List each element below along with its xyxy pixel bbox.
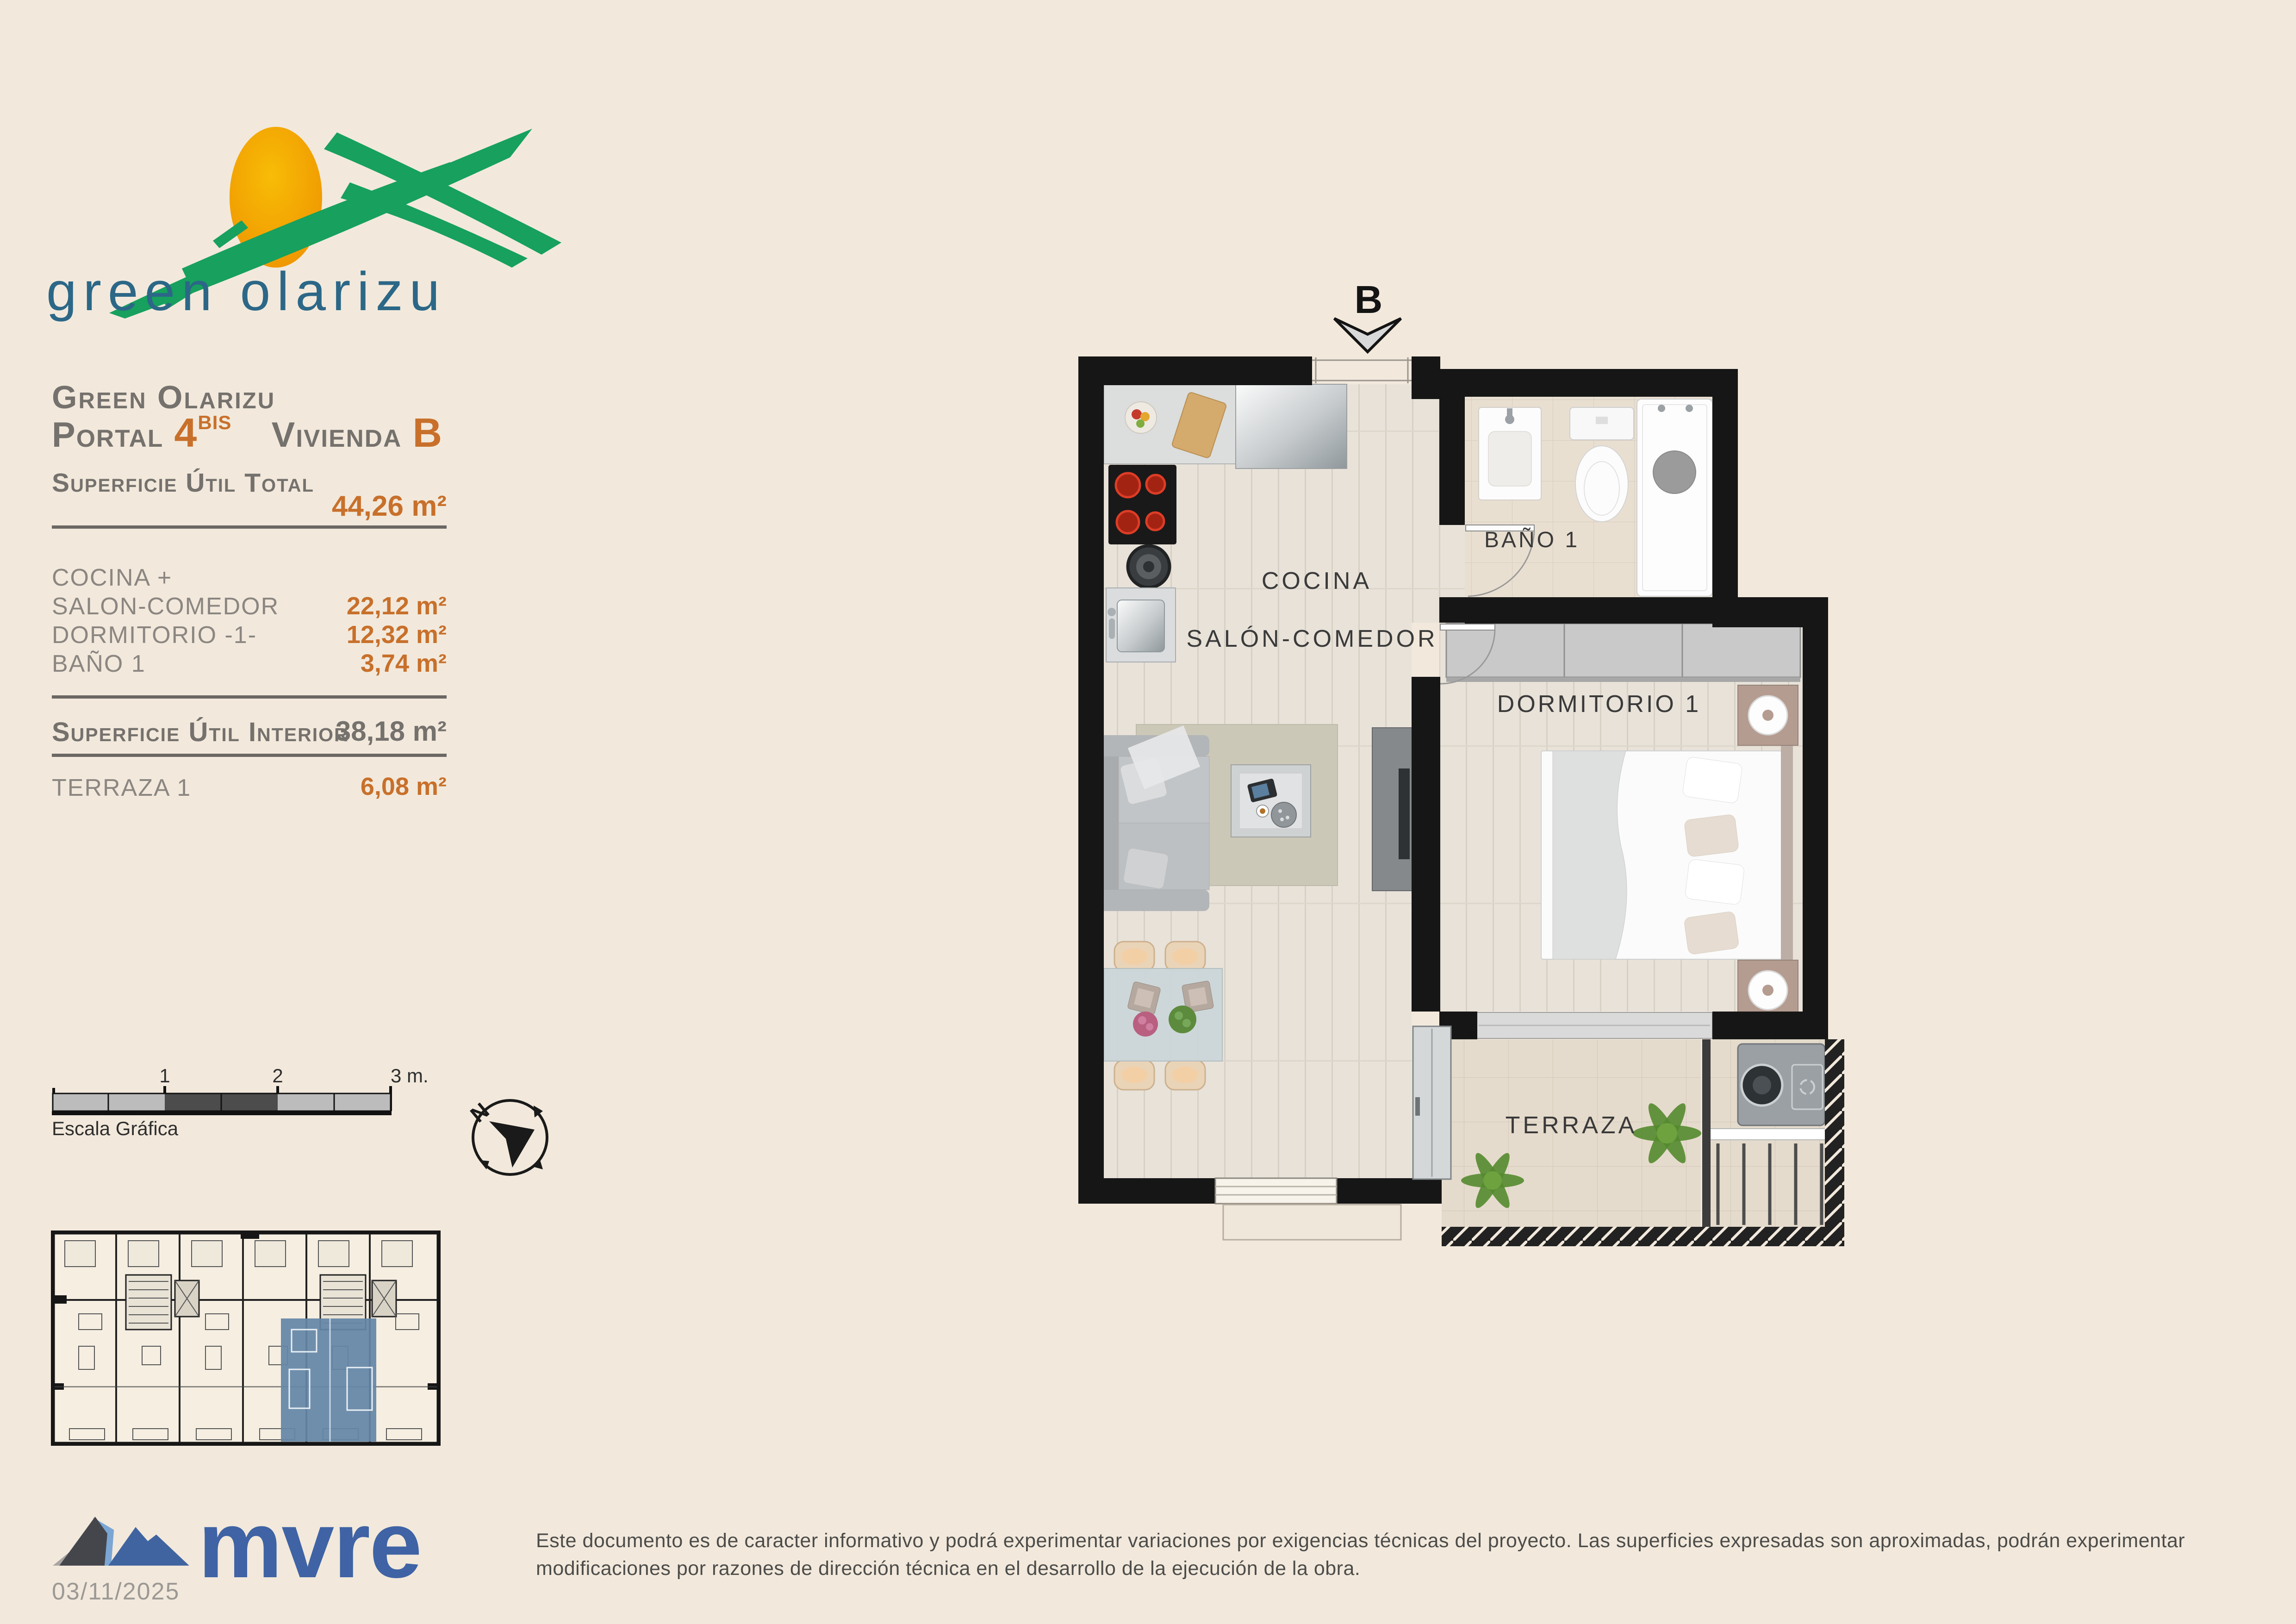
scale-tick-1: 1	[159, 1065, 170, 1087]
divider	[52, 754, 447, 757]
entrance-marker-label: B	[1355, 278, 1383, 321]
key-plan	[51, 1230, 441, 1446]
document-date: 03/11/2025	[52, 1578, 180, 1605]
terrace-washer-icon	[1738, 1044, 1825, 1125]
portal-number: 4	[174, 410, 198, 456]
logo-wordmark: green olarizu	[46, 261, 446, 322]
legal-disclaimer: Este documento es de caracter informativ…	[536, 1527, 2296, 1582]
area-row-value: 22,12 m²	[52, 592, 447, 620]
interior-area-value: 38,18 m²	[52, 715, 447, 747]
coffee-table-icon	[1231, 765, 1311, 837]
portal-suffix: BIS	[198, 412, 231, 433]
vivienda-label: Vivienda	[272, 415, 402, 455]
sofa-icon	[1095, 725, 1209, 911]
shower-icon	[1637, 399, 1712, 596]
window-sill-icon	[1223, 1205, 1401, 1240]
vivienda-letter: B	[412, 410, 443, 456]
compass-north-label: N	[466, 1099, 494, 1128]
fridge-icon	[1236, 384, 1347, 468]
total-area-value: 44,26 m²	[52, 490, 447, 523]
portal-label: Portal	[52, 415, 163, 455]
tv-icon	[1399, 768, 1410, 859]
room-label-terraza: TERRAZA	[1506, 1112, 1637, 1139]
north-arrow-icon	[489, 1121, 535, 1168]
divider	[52, 695, 447, 699]
scale-bar: 1 2 3 m. Escala Gráfica	[52, 1065, 468, 1139]
key-plan-highlighted-unit	[281, 1318, 376, 1442]
mvre-logo-icon	[52, 1513, 193, 1568]
scale-tick-2: 2	[272, 1065, 283, 1087]
unit-title: Portal 4BIS Vivienda B	[52, 409, 447, 456]
room-label-bano: BAÑO 1	[1484, 527, 1580, 552]
terrace-row-value: 6,08 m²	[52, 772, 447, 801]
room-label-salon: SALÓN-COMEDOR	[1186, 625, 1437, 652]
area-row-value: 12,32 m²	[52, 620, 447, 649]
scale-bar-label: Escala Gráfica	[52, 1118, 179, 1139]
terrace-sliding-door	[1413, 1026, 1451, 1179]
scale-tick-3: 3 m.	[391, 1065, 429, 1087]
north-compass: N	[465, 1093, 555, 1183]
sink-icon	[1117, 600, 1164, 652]
double-bed-icon	[1541, 745, 1793, 965]
entrance-arrow-icon	[1334, 319, 1401, 352]
mvre-wordmark: mvre	[198, 1497, 421, 1592]
toilet-icon	[1570, 407, 1634, 522]
wardrobe-icon	[1446, 624, 1800, 677]
green-olarizu-logo: green olarizu	[41, 101, 575, 325]
room-label-cocina: COCINA	[1262, 568, 1372, 594]
entrance-door	[1312, 357, 1412, 383]
area-row-label: COCINA +	[52, 564, 447, 592]
room-label-dormitorio: DORMITORIO 1	[1497, 691, 1701, 718]
divider	[52, 525, 447, 529]
area-row-value: 3,74 m²	[52, 649, 447, 678]
floor-plan: B COCINA SALÓN-COMEDOR BAÑO 1 DORMITORIO…	[1064, 278, 1879, 1273]
